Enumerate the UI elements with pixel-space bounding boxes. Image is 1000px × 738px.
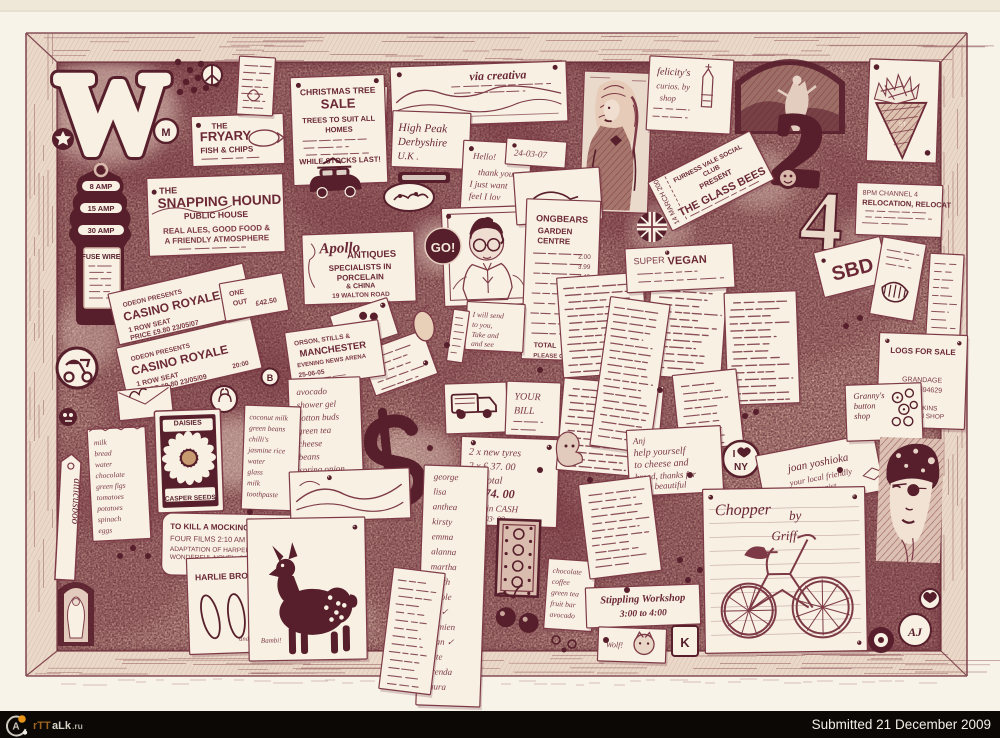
- svg-text:kirsty: kirsty: [432, 516, 452, 527]
- svg-text:3:00 to 4:00: 3:00 to 4:00: [619, 608, 668, 620]
- svg-text:felicity's: felicity's: [657, 66, 691, 79]
- svg-text:to you,: to you,: [472, 320, 493, 330]
- svg-text:ONGBEARS: ONGBEARS: [536, 213, 588, 225]
- svg-text:jasmine rice: jasmine rice: [247, 445, 286, 455]
- svg-text:Griff: Griff: [771, 528, 799, 543]
- svg-text:cheese: cheese: [298, 438, 322, 449]
- svg-text:and see: and see: [471, 339, 495, 349]
- svg-text:potatoes: potatoes: [96, 503, 123, 513]
- svg-text:YOUR: YOUR: [514, 391, 540, 403]
- svg-text:3.99: 3.99: [578, 264, 591, 271]
- svg-text:avocado: avocado: [549, 610, 575, 621]
- svg-text:coconut milk: coconut milk: [249, 412, 288, 422]
- svg-text:THE: THE: [159, 185, 177, 196]
- svg-text:button: button: [854, 400, 876, 411]
- svg-text:GO!: GO!: [431, 240, 456, 255]
- svg-text:rTT: rTT: [33, 720, 51, 732]
- svg-text:I: I: [733, 449, 736, 460]
- svg-text:shop: shop: [854, 410, 870, 421]
- svg-text:Derbyshire: Derbyshire: [397, 136, 448, 150]
- svg-text:15 AMP: 15 AMP: [88, 204, 115, 213]
- svg-text:& CHINA: & CHINA: [346, 282, 375, 290]
- svg-text:coffee: coffee: [552, 577, 571, 587]
- svg-text:DAISIES: DAISIES: [174, 420, 203, 428]
- svg-text:High Peak: High Peak: [397, 122, 448, 136]
- svg-text:FOUR FILMS 2:10 AM: FOUR FILMS 2:10 AM: [170, 534, 245, 544]
- svg-text:AJ: AJ: [907, 625, 923, 639]
- svg-text:Hello!: Hello!: [472, 151, 496, 162]
- svg-text:FRYARY: FRYARY: [200, 128, 252, 145]
- svg-text:ST: ST: [899, 122, 907, 128]
- svg-text:Granny's: Granny's: [853, 390, 885, 401]
- svg-text:8 AMP: 8 AMP: [90, 182, 113, 191]
- svg-text:Bambi!: Bambi!: [261, 636, 282, 644]
- svg-text:anthea: anthea: [433, 501, 458, 512]
- svg-text:FUSE WIRE: FUSE WIRE: [82, 254, 121, 261]
- svg-text:feel I lov: feel I lov: [469, 191, 501, 203]
- svg-text:cotton buds: cotton buds: [297, 412, 340, 423]
- svg-text:K: K: [680, 635, 690, 650]
- svg-text:BILL: BILL: [514, 405, 535, 417]
- svg-text:PORCELAIN: PORCELAIN: [337, 272, 385, 283]
- svg-text:avocado: avocado: [296, 386, 327, 397]
- svg-text:thank you: thank you: [478, 167, 514, 179]
- svg-text:NY: NY: [734, 462, 748, 473]
- svg-text:VEGAN: VEGAN: [667, 254, 707, 268]
- svg-text:Anj: Anj: [632, 436, 647, 447]
- svg-text:martha: martha: [431, 561, 458, 572]
- svg-text:tomatoes: tomatoes: [96, 492, 124, 502]
- svg-text:chilli's: chilli's: [249, 434, 269, 444]
- svg-text:chocolate: chocolate: [95, 470, 125, 481]
- svg-text:green tea: green tea: [298, 425, 332, 436]
- svg-text:shop: shop: [660, 92, 677, 103]
- svg-text:bread: bread: [94, 448, 112, 458]
- svg-text:milk: milk: [247, 478, 261, 487]
- svg-text:Chopper: Chopper: [715, 501, 772, 519]
- svg-text:via creativa: via creativa: [469, 67, 526, 83]
- svg-text:M: M: [161, 127, 170, 139]
- svg-text:by: by: [789, 508, 802, 523]
- svg-text:spinach: spinach: [98, 514, 122, 524]
- svg-text:I will send: I will send: [471, 310, 504, 321]
- svg-text:green beans: green beans: [249, 423, 286, 433]
- svg-text:W: W: [56, 52, 168, 176]
- svg-text:glass: glass: [247, 467, 263, 477]
- svg-text:GARDEN: GARDEN: [538, 226, 573, 236]
- svg-text:milk: milk: [94, 438, 108, 448]
- svg-text:Submitted 21 December 2009: Submitted 21 December 2009: [812, 717, 991, 732]
- svg-text:2 x new tyres: 2 x new tyres: [469, 447, 522, 460]
- svg-text:I just want: I just want: [468, 179, 508, 191]
- svg-text:TOTAL: TOTAL: [534, 342, 558, 350]
- svg-text:lisa: lisa: [433, 486, 447, 496]
- svg-text:B: B: [267, 373, 274, 383]
- svg-text:FISH & CHIPS: FISH & CHIPS: [200, 144, 254, 155]
- svg-text:curios. by: curios. by: [656, 80, 690, 92]
- svg-text:fruit bar: fruit bar: [550, 599, 576, 610]
- svg-text:george: george: [434, 471, 459, 482]
- svg-text:ANTIQUES: ANTIQUES: [347, 249, 396, 262]
- svg-text:30 AMP: 30 AMP: [88, 226, 115, 235]
- svg-text:beans: beans: [298, 451, 320, 462]
- svg-text:water: water: [248, 456, 265, 466]
- svg-text:green figs: green figs: [96, 481, 126, 492]
- svg-text:emma: emma: [432, 531, 454, 542]
- svg-text:HOMES: HOMES: [325, 125, 353, 135]
- svg-text:SUPER: SUPER: [633, 255, 665, 267]
- svg-text:2.00: 2.00: [578, 254, 591, 261]
- svg-text:water: water: [95, 459, 113, 469]
- svg-text:toothpaste: toothpaste: [247, 489, 279, 499]
- svg-text:SALE: SALE: [320, 95, 356, 111]
- svg-text:alanna: alanna: [431, 546, 457, 557]
- svg-text:U.K .: U.K .: [397, 151, 419, 163]
- svg-text:atticusboo: atticusboo: [69, 478, 83, 525]
- svg-text:eggs: eggs: [98, 525, 112, 535]
- svg-text:CENTRE: CENTRE: [537, 236, 571, 246]
- svg-text:A: A: [12, 722, 19, 733]
- svg-text:shower gel: shower gel: [297, 399, 337, 410]
- svg-text:aLk: aLk: [52, 720, 72, 732]
- svg-text:.ru: .ru: [72, 721, 83, 731]
